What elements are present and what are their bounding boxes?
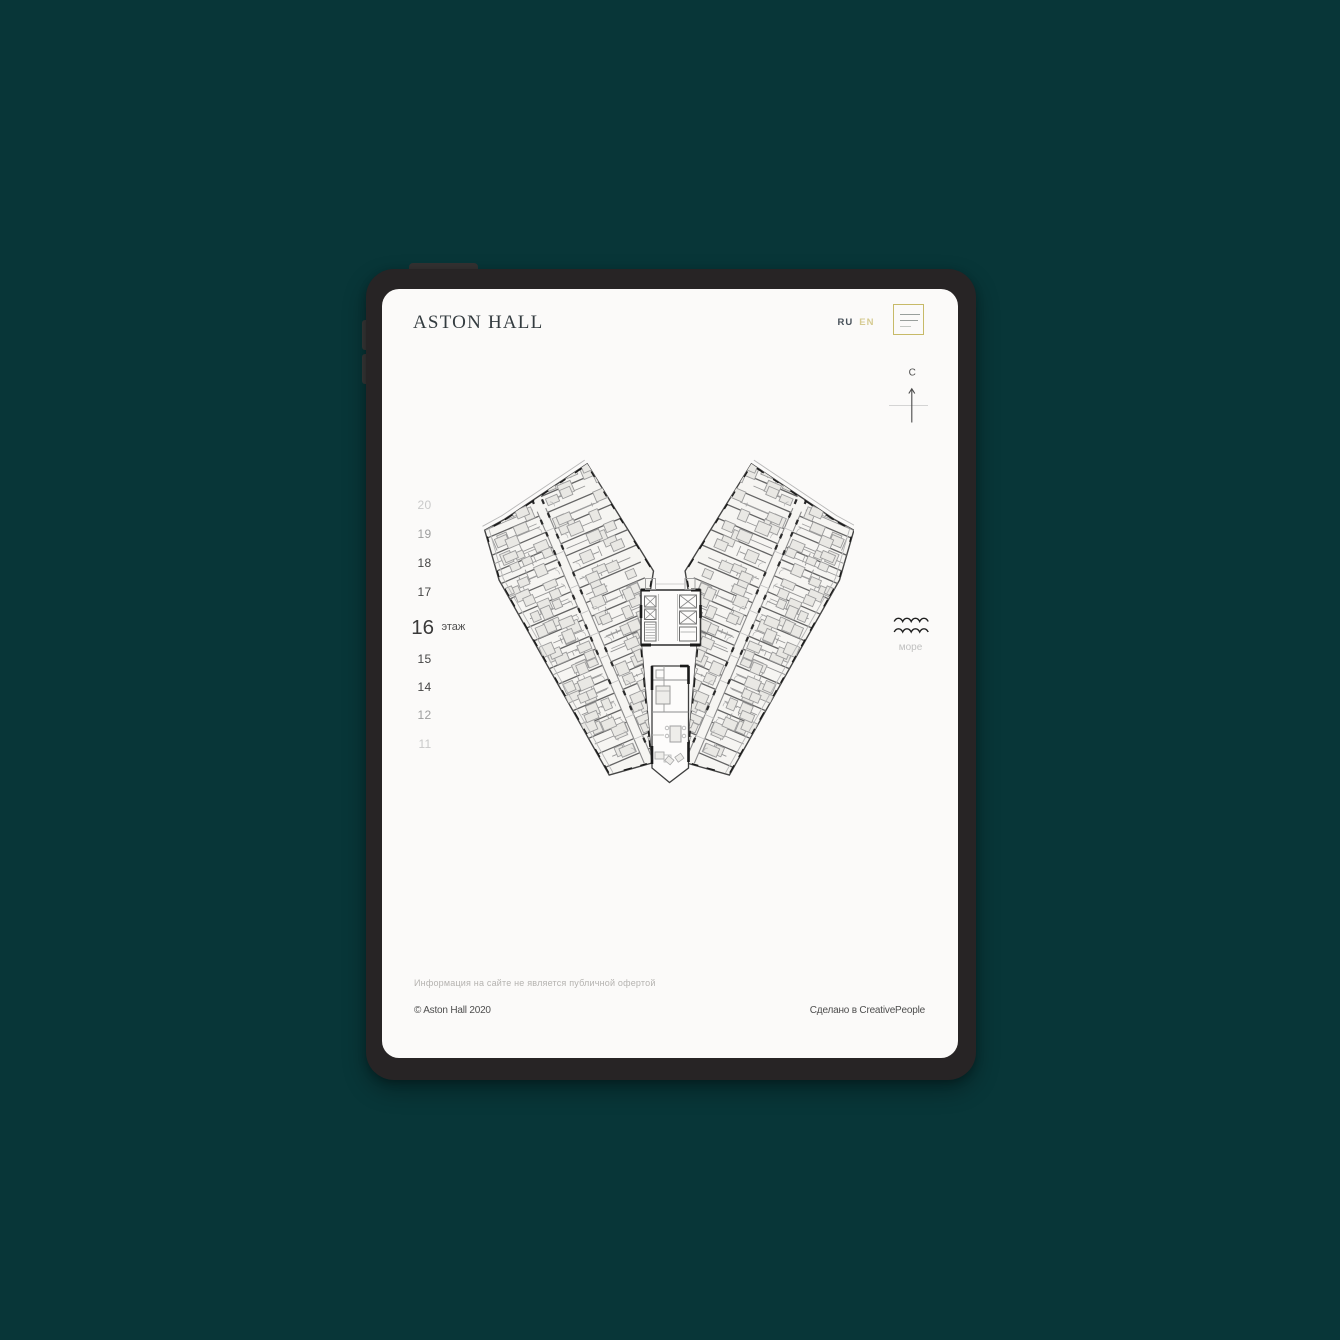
svg-text:С: С (908, 367, 915, 378)
